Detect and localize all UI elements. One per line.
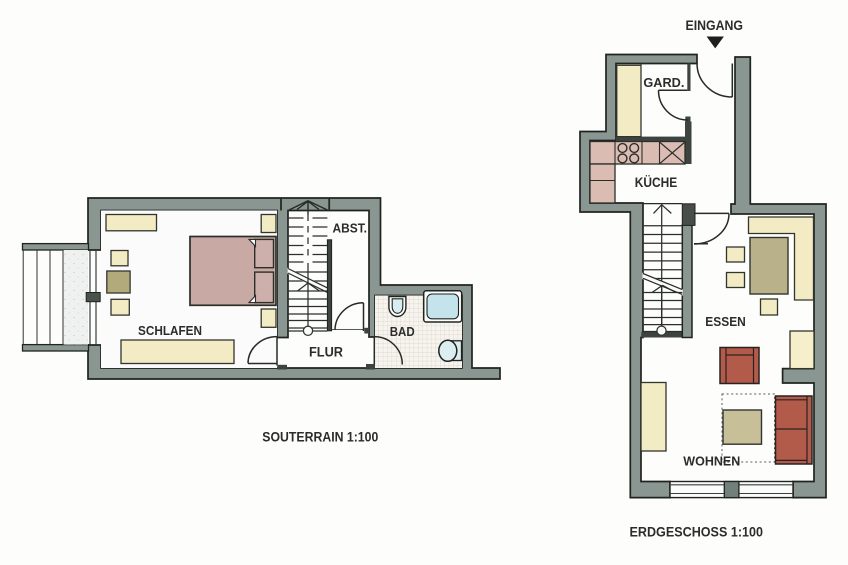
svg-text:ABST.: ABST. <box>333 220 368 235</box>
svg-text:KÜCHE: KÜCHE <box>635 175 678 190</box>
svg-text:ERDGESCHOSS 1:100: ERDGESCHOSS 1:100 <box>630 524 764 539</box>
svg-text:FLUR: FLUR <box>309 345 343 360</box>
svg-text:EINGANG: EINGANG <box>686 18 744 33</box>
svg-text:SOUTERRAIN 1:100: SOUTERRAIN 1:100 <box>262 429 378 444</box>
svg-text:ESSEN: ESSEN <box>705 314 746 329</box>
svg-text:BAD: BAD <box>390 324 415 339</box>
svg-text:WOHNEN: WOHNEN <box>683 454 740 469</box>
svg-text:GARD.: GARD. <box>643 75 684 90</box>
svg-text:SCHLAFEN: SCHLAFEN <box>138 323 202 338</box>
